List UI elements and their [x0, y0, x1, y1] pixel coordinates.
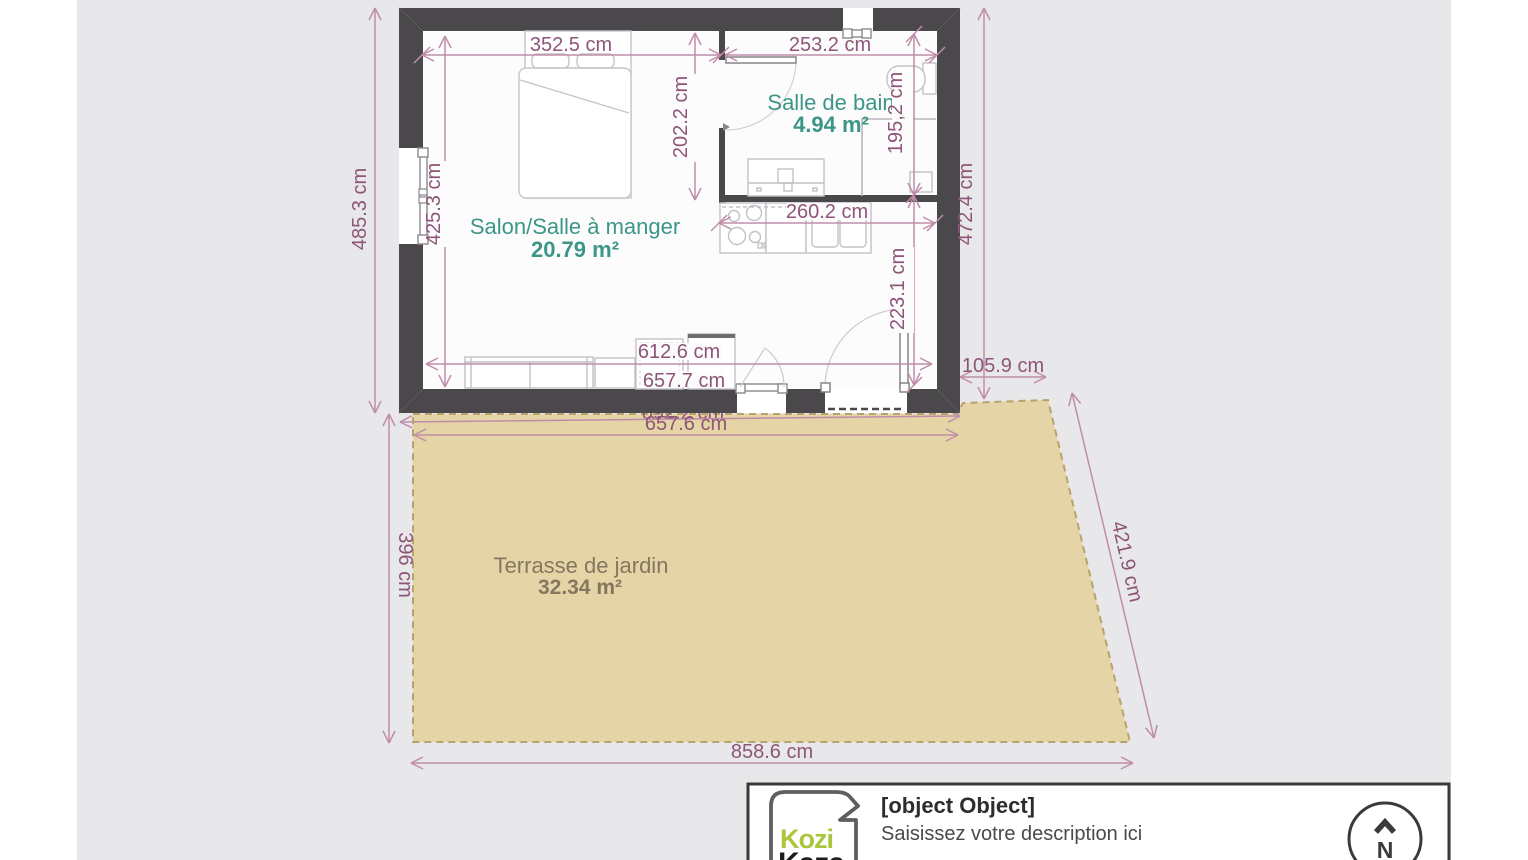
svg-text:485.3 cm: 485.3 cm: [349, 168, 371, 250]
svg-text:Kaza: Kaza: [778, 847, 845, 860]
svg-text:20.79 m²: 20.79 m²: [531, 237, 619, 262]
svg-text:396 cm: 396 cm: [394, 532, 416, 598]
svg-text:Terrasse de jardin: Terrasse de jardin: [494, 553, 669, 578]
svg-text:4.94 m²: 4.94 m²: [793, 112, 869, 137]
svg-text:260.2 cm: 260.2 cm: [786, 201, 868, 223]
svg-text:472.4 cm: 472.4 cm: [955, 163, 977, 245]
svg-text:N: N: [1377, 837, 1394, 860]
svg-text:657.6 cm: 657.6 cm: [645, 413, 727, 435]
svg-text:657.7 cm: 657.7 cm: [643, 370, 725, 392]
svg-text:Salon/Salle à manger: Salon/Salle à manger: [470, 214, 680, 239]
svg-text:352.5 cm: 352.5 cm: [530, 34, 612, 56]
svg-text:425.3 cm: 425.3 cm: [423, 163, 445, 245]
svg-text:32.34 m²: 32.34 m²: [538, 576, 622, 599]
svg-text:195,2 cm: 195,2 cm: [885, 72, 907, 154]
svg-text:[object Object]: [object Object]: [881, 793, 1035, 818]
svg-text:Saisissez votre description ic: Saisissez votre description ici: [881, 823, 1142, 845]
svg-text:223.1 cm: 223.1 cm: [887, 248, 909, 330]
svg-text:253.2 cm: 253.2 cm: [789, 34, 871, 56]
svg-text:105.9 cm: 105.9 cm: [962, 355, 1044, 377]
svg-text:858.6 cm: 858.6 cm: [731, 741, 813, 763]
svg-text:202.2 cm: 202.2 cm: [670, 76, 692, 158]
svg-text:612.6 cm: 612.6 cm: [638, 341, 720, 363]
